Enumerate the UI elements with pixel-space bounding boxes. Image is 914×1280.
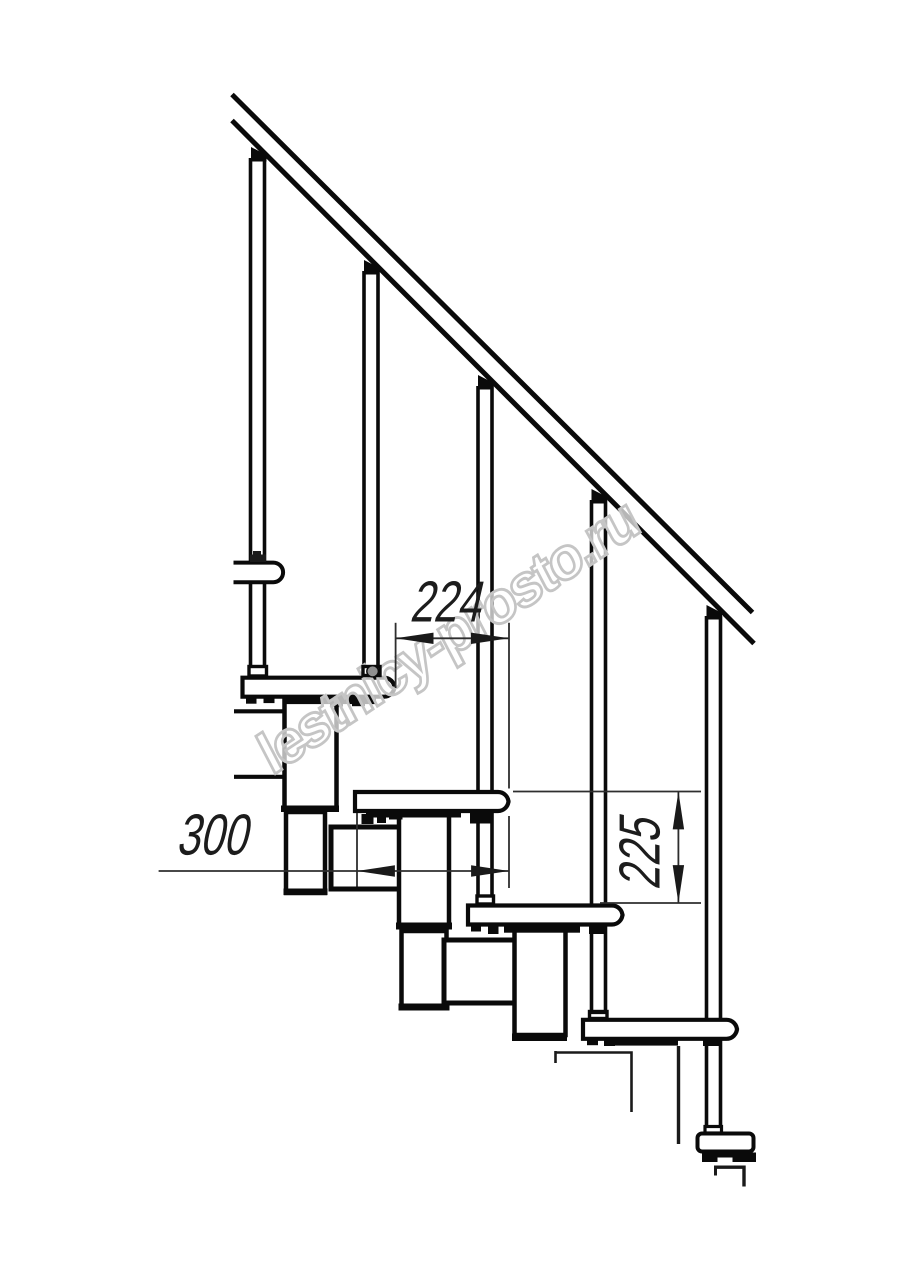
svg-text:225: 225 [607,807,672,893]
svg-text:300: 300 [173,802,259,867]
svg-text:224: 224 [406,569,492,634]
